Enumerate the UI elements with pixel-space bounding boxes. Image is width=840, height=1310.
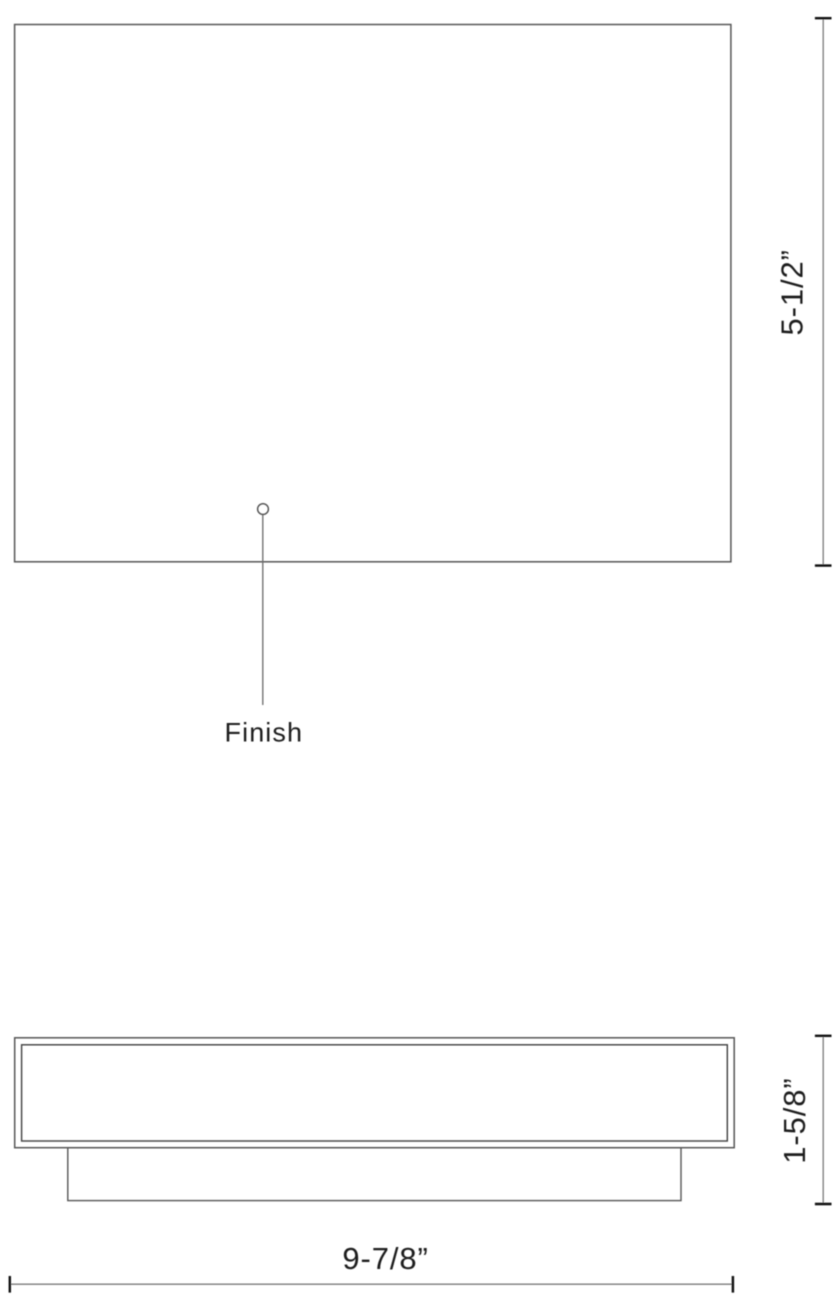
svg-text:5-1/2”: 5-1/2” [775, 249, 810, 335]
svg-text:Finish: Finish [225, 718, 304, 748]
svg-text:9-7/8”: 9-7/8” [342, 1241, 428, 1276]
svg-text:1-5/8”: 1-5/8” [777, 1077, 812, 1163]
